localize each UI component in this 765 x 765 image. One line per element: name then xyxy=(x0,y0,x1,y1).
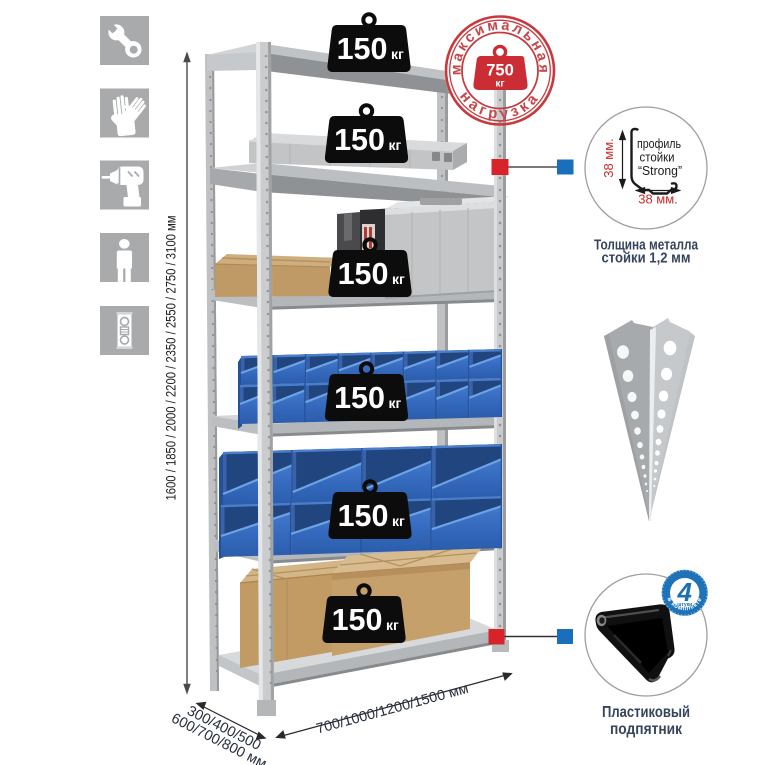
svg-text:стойки 1,2 мм: стойки 1,2 мм xyxy=(602,250,691,267)
svg-text:профиль: профиль xyxy=(637,137,681,151)
svg-text:подпятник: подпятник xyxy=(610,721,683,738)
svg-text:1600 / 1850 / 2000 / 2200 / 23: 1600 / 1850 / 2000 / 2200 / 2350 / 2550 … xyxy=(164,216,179,501)
svg-text:штуки: штуки xyxy=(677,602,692,608)
svg-text:стойки: стойки xyxy=(640,151,675,165)
svg-text:“Strong”: “Strong” xyxy=(638,164,682,178)
svg-text:38 мм.: 38 мм. xyxy=(601,138,616,178)
svg-text:750: 750 xyxy=(486,62,514,80)
svg-text:38 мм.: 38 мм. xyxy=(638,192,678,207)
svg-text:Пластиковый: Пластиковый xyxy=(602,704,690,721)
svg-text:кг: кг xyxy=(495,79,504,90)
